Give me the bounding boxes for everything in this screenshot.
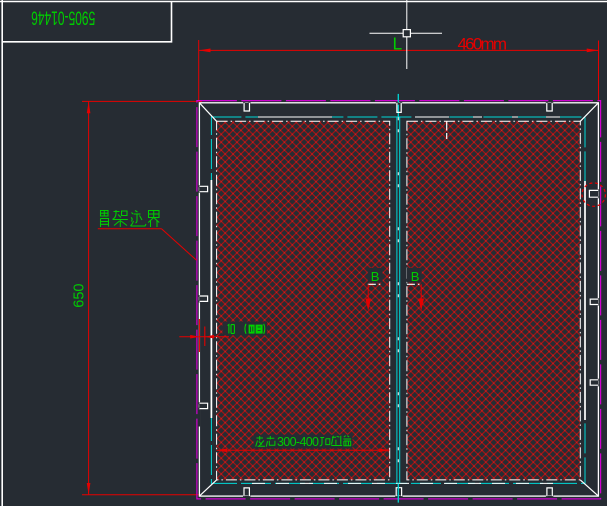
svg-text:5905-01446: 5905-01446	[31, 7, 95, 28]
svg-text:B: B	[411, 269, 420, 284]
svg-text:B: B	[371, 269, 380, 284]
svg-text:L: L	[393, 33, 403, 53]
svg-text:300-400: 300-400	[277, 435, 319, 449]
svg-text:460mm: 460mm	[458, 34, 508, 53]
svg-text:650: 650	[71, 283, 87, 307]
